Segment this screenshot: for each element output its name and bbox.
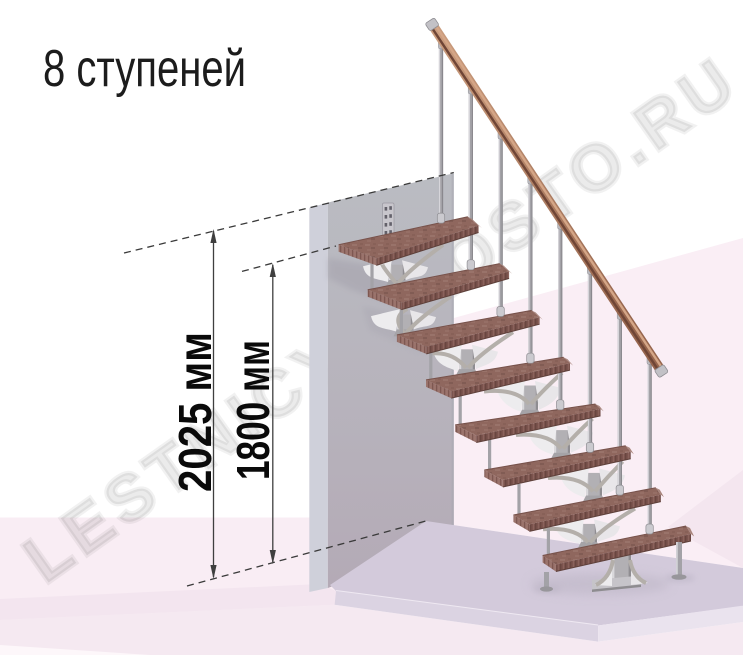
svg-text:8 ступеней: 8 ступеней	[43, 40, 246, 98]
svg-text:2025 мм: 2025 мм	[169, 332, 221, 492]
svg-text:1800 мм: 1800 мм	[227, 340, 279, 480]
